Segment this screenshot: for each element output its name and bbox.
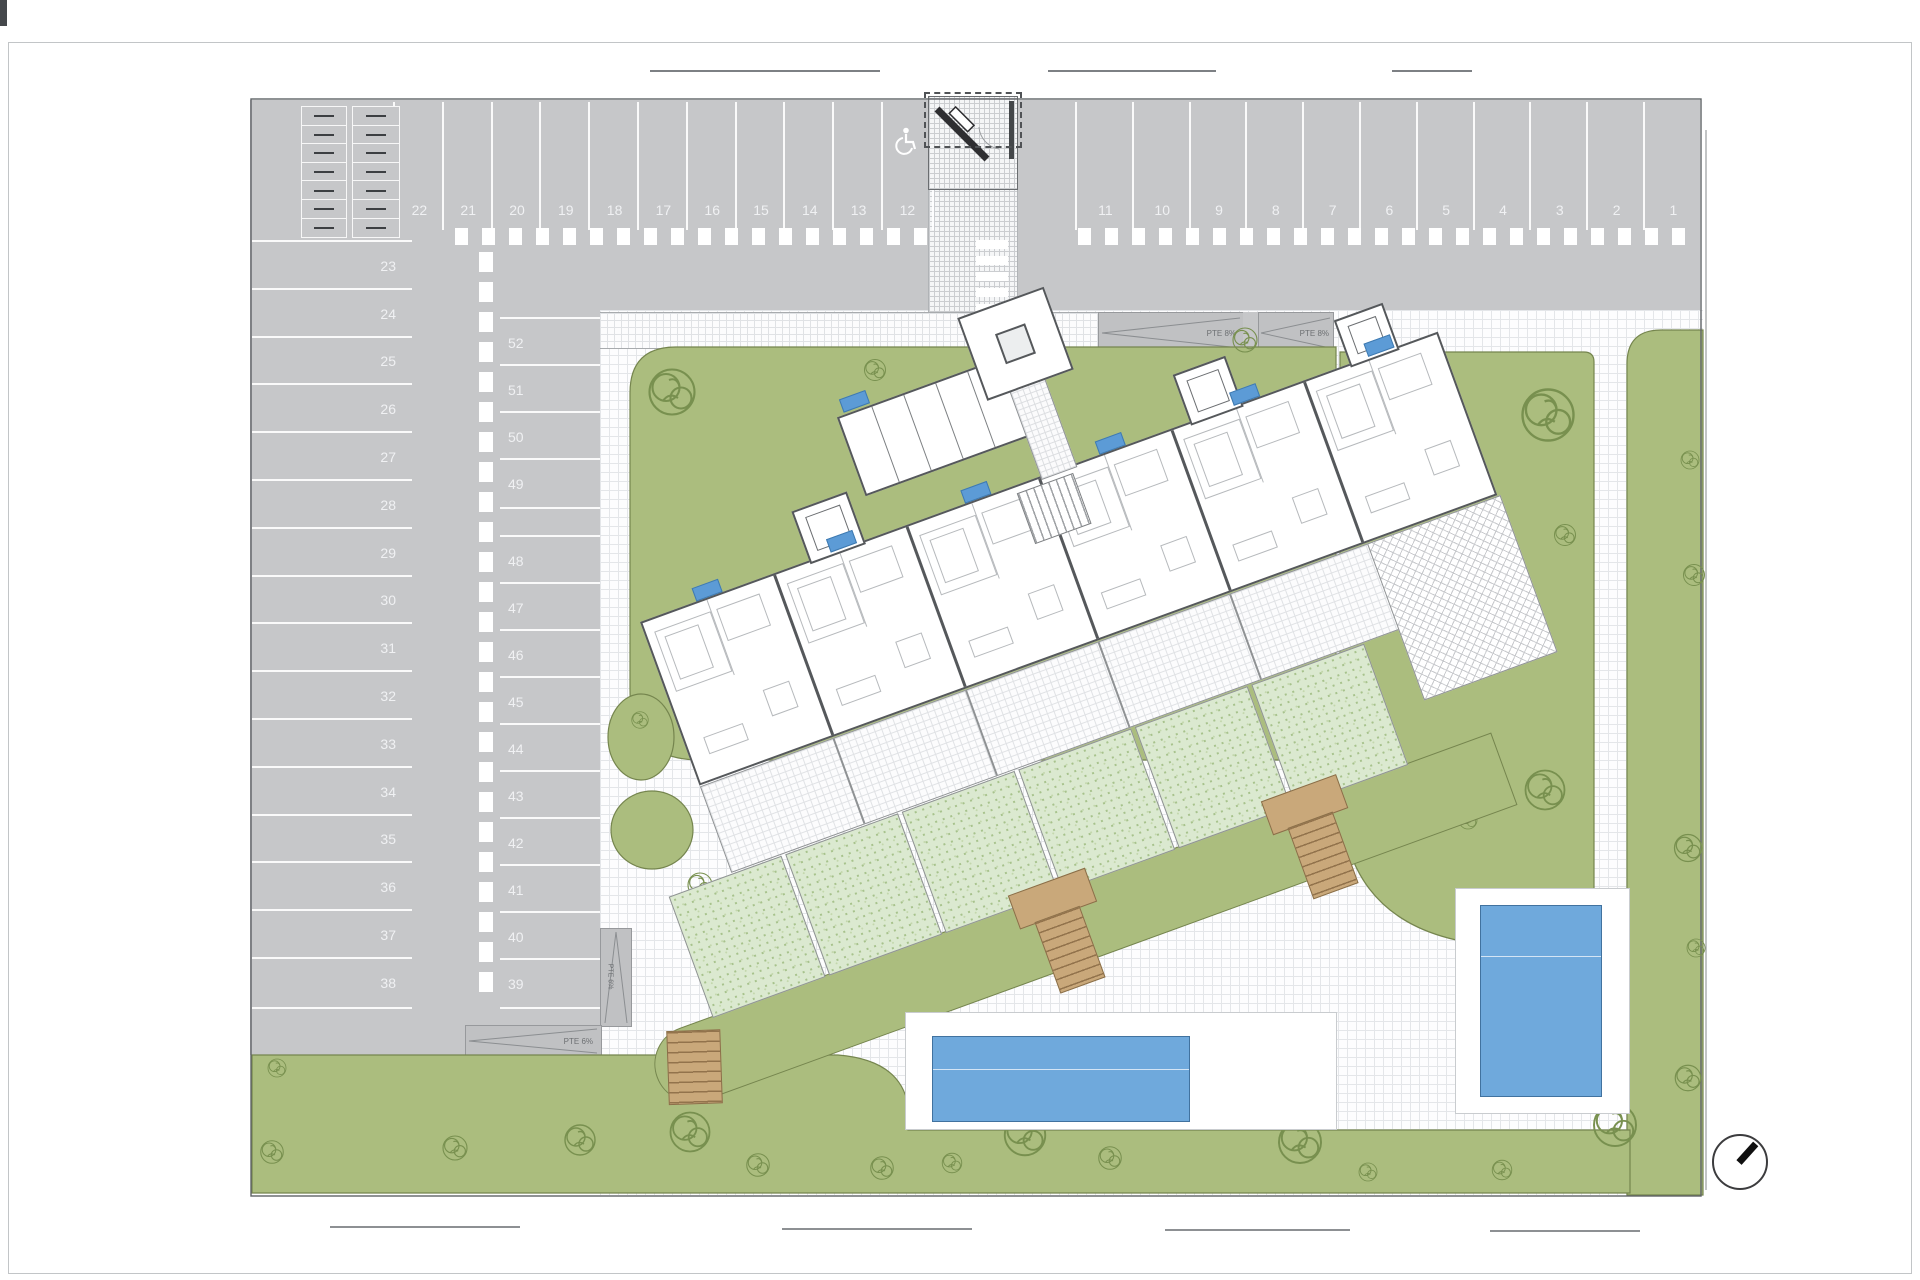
lane-dash — [698, 228, 711, 245]
bike-icon — [314, 134, 334, 136]
bike-icon — [314, 171, 334, 173]
parking-space-number: 12 — [883, 202, 932, 218]
parking-space-number: 39 — [508, 976, 524, 992]
bike-rack-east — [1628, 423, 1670, 444]
terrace-divider — [1230, 594, 1263, 679]
table-outline — [1160, 536, 1196, 572]
lane-dash — [1294, 228, 1307, 245]
parking-space: 3 — [1529, 102, 1588, 230]
boundary-segment — [650, 70, 880, 72]
bike-icon — [1639, 525, 1659, 527]
lane-dash — [479, 882, 493, 902]
north-arrow — [1712, 1134, 1768, 1190]
sofa-outline — [703, 723, 749, 754]
parking-space-number: 7 — [1304, 202, 1361, 218]
parking-space-number: 18 — [590, 202, 639, 218]
lane-dash — [833, 228, 846, 245]
bike-rack — [301, 180, 347, 201]
storage-cell-divider — [871, 407, 899, 483]
lane-dash — [1213, 228, 1226, 245]
bathroom-outline — [1246, 401, 1301, 449]
parking-space-number: 15 — [737, 202, 786, 218]
ramp-label: PTE 6% — [564, 1037, 593, 1046]
lane-dash — [914, 228, 927, 245]
bike-rack — [352, 162, 400, 183]
lane-dash — [455, 228, 468, 245]
lane-dash — [1186, 228, 1199, 245]
lane-dash — [479, 612, 493, 632]
bike-rack — [352, 218, 400, 239]
lane-dash — [1429, 228, 1442, 245]
table-outline — [1292, 488, 1328, 524]
boundary-segment — [330, 1226, 520, 1228]
bike-icon — [314, 190, 334, 192]
lane-dash — [479, 492, 493, 512]
parking-space-number: 19 — [541, 202, 590, 218]
lane-dash — [479, 732, 493, 752]
parking-space: 52 — [500, 317, 600, 366]
ramp-label: PTE 8% — [1300, 329, 1329, 338]
parking-space-number: 20 — [493, 202, 542, 218]
wheelchair-icon — [895, 126, 919, 156]
sofa-outline — [1365, 482, 1411, 513]
parking-space: 26 — [252, 383, 412, 433]
lane-dash — [1645, 228, 1658, 245]
crosswalk-stripe — [976, 240, 1008, 249]
parking-space-number: 29 — [380, 545, 396, 561]
parking-space: 10 — [1132, 102, 1191, 230]
lane-dash — [1483, 228, 1496, 245]
parking-space-number: 34 — [380, 784, 396, 800]
parking-space: 31 — [252, 622, 412, 672]
parking-space-number: 17 — [639, 202, 688, 218]
sofa-outline — [836, 675, 882, 706]
parking-space: 39 — [500, 958, 600, 1009]
boundary-segment — [1165, 1229, 1350, 1231]
parking-space: 44 — [500, 723, 600, 772]
lane-dash — [1321, 228, 1334, 245]
parking-space-number: 43 — [508, 788, 524, 804]
parking-space: 23 — [252, 240, 412, 290]
parking-space: 27 — [252, 431, 412, 481]
parking-space: 36 — [252, 861, 412, 911]
lane-dash — [479, 822, 493, 842]
parking-space: 19 — [539, 102, 590, 230]
bike-rack — [301, 218, 347, 239]
elevator-core — [995, 323, 1036, 364]
crosswalk-stripe — [976, 288, 1008, 297]
parking-space-number: 3 — [1531, 202, 1588, 218]
parking-space-number: 44 — [508, 741, 524, 757]
lane-dash — [779, 228, 792, 245]
parking-space: 7 — [1302, 102, 1361, 230]
parking-space: 24 — [252, 288, 412, 338]
boundary-segment — [1048, 70, 1216, 72]
lane-dash — [479, 762, 493, 782]
lane-dash — [806, 228, 819, 245]
waterline — [1481, 956, 1601, 957]
parking-space-number: 33 — [380, 736, 396, 752]
terrace-divider — [833, 739, 866, 824]
parking-space: 25 — [252, 336, 412, 386]
parking-space: 45 — [500, 676, 600, 725]
gate-kiosk-dashed-outline — [924, 92, 1022, 148]
parking-space-number: 31 — [380, 640, 396, 656]
lane-dash — [860, 228, 873, 245]
lane-dash — [1618, 228, 1631, 245]
parking-space-number: 48 — [508, 553, 524, 569]
parking-space: 1 — [1643, 102, 1704, 230]
parking-space-number: 1 — [1645, 202, 1702, 218]
site-plan-page: { "colors":{ "asphalt":"#c6c7c9","lawn":… — [0, 0, 1920, 1280]
parking-space: 41 — [500, 864, 600, 913]
parking-space-number: 36 — [380, 879, 396, 895]
parking-space-number: 35 — [380, 831, 396, 847]
lane-dash — [479, 402, 493, 422]
parking-space-number: 13 — [834, 202, 883, 218]
lane-dash — [479, 852, 493, 872]
parking-space: 28 — [252, 479, 412, 529]
ramp-label: PTE 6% — [606, 964, 613, 990]
parking-space-number: 16 — [688, 202, 737, 218]
parking-space: 21 — [442, 102, 493, 230]
bike-icon — [1639, 470, 1659, 472]
lane-dash — [1240, 228, 1253, 245]
boundary-segment — [1392, 70, 1472, 72]
lane-dash — [725, 228, 738, 245]
bike-rack-east — [1628, 516, 1670, 537]
lane-dash — [1402, 228, 1415, 245]
bike-rack-east — [1628, 498, 1670, 519]
lane-dash — [1267, 228, 1280, 245]
bike-rack-east — [1628, 535, 1670, 556]
bike-rack — [352, 199, 400, 220]
bathroom-outline — [716, 593, 771, 641]
bike-rack-east — [1628, 479, 1670, 500]
parking-space-number: 50 — [508, 429, 524, 445]
bike-icon — [1639, 544, 1659, 546]
parking-space: 51 — [500, 364, 600, 413]
parking-space: 5 — [1416, 102, 1475, 230]
parking-space-number: 2 — [1588, 202, 1645, 218]
parking-space-number: 40 — [508, 929, 524, 945]
bike-rack — [352, 125, 400, 146]
lane-dash — [644, 228, 657, 245]
lane-dash — [1510, 228, 1523, 245]
parking-space: 46 — [500, 629, 600, 678]
lane-dash — [482, 228, 495, 245]
lane-dash — [617, 228, 630, 245]
parking-space: 34 — [252, 766, 412, 816]
bathroom-outline — [1378, 353, 1433, 401]
parking-space: 16 — [686, 102, 737, 230]
parking-space-number: 42 — [508, 835, 524, 851]
lane-dash — [479, 552, 493, 572]
lane-dash — [479, 702, 493, 722]
lane-dash — [536, 228, 549, 245]
ramp-side: PTE 6% — [600, 928, 632, 1027]
sofa-outline — [1100, 578, 1146, 609]
parking-space-number: 4 — [1475, 202, 1532, 218]
bike-icon — [314, 115, 334, 117]
parking-space-number: 28 — [380, 497, 396, 513]
parking-space-number: 37 — [380, 927, 396, 943]
parking-space: 50 — [500, 411, 600, 460]
ramp-top-b: PTE 8% — [1258, 312, 1334, 354]
bike-rack — [301, 143, 347, 164]
parking-space-number: 8 — [1247, 202, 1304, 218]
lane-dash — [479, 672, 493, 692]
lane-dash — [479, 582, 493, 602]
parking-space: 29 — [252, 527, 412, 577]
lane-dash — [1159, 228, 1172, 245]
bike-rack — [301, 199, 347, 220]
lane-dash — [590, 228, 603, 245]
lane-dash — [479, 462, 493, 482]
parking-space-number: 14 — [785, 202, 834, 218]
lane-dash — [1591, 228, 1604, 245]
table-outline — [895, 632, 931, 668]
lane-dash — [479, 252, 493, 272]
parking-space-number: 23 — [380, 258, 396, 274]
bike-rack-east — [1628, 460, 1670, 481]
crosswalk-stripe — [976, 256, 1008, 265]
bike-icon — [314, 227, 334, 229]
bike-icon — [366, 190, 386, 192]
table-outline — [1027, 584, 1063, 620]
bike-rack — [301, 106, 347, 127]
bike-icon — [1639, 488, 1659, 490]
bike-rack-east — [1628, 442, 1670, 463]
lane-dash — [479, 912, 493, 932]
ramp-label: PTE 8% — [1207, 329, 1236, 338]
bike-icon — [1639, 581, 1659, 583]
storage-cell-divider — [935, 383, 963, 459]
parking-space-number: 41 — [508, 882, 524, 898]
lane-dash — [671, 228, 684, 245]
tower-inner — [1186, 369, 1230, 413]
lane-dash — [479, 792, 493, 812]
lane-dash — [563, 228, 576, 245]
lane-dash — [1078, 228, 1091, 245]
bike-rack-east — [1628, 405, 1670, 426]
parking-space: 38 — [252, 957, 412, 1009]
bike-rack-east — [1628, 386, 1670, 407]
lane-dash — [1564, 228, 1577, 245]
parking-space-number: 5 — [1418, 202, 1475, 218]
parking-space: 40 — [500, 911, 600, 960]
lane-dash — [1672, 228, 1685, 245]
parking-space: 20 — [491, 102, 542, 230]
lane-dash — [1348, 228, 1361, 245]
lane-dash — [1105, 228, 1118, 245]
parking-space-number: 32 — [380, 688, 396, 704]
parking-space-number: 38 — [380, 975, 396, 991]
ramp-gap — [1243, 312, 1258, 352]
bike-icon — [314, 152, 334, 154]
lane-dash — [1132, 228, 1145, 245]
parking-space-number: 51 — [508, 382, 524, 398]
parking-space-number: 45 — [508, 694, 524, 710]
parking-space: 11 — [1075, 102, 1134, 230]
boundary-segment — [1490, 1230, 1640, 1232]
parking-space: 37 — [252, 909, 412, 959]
bike-icon — [366, 152, 386, 154]
bike-icon — [366, 171, 386, 173]
parking-space: 13 — [832, 102, 883, 230]
parking-space: 49 — [500, 458, 600, 509]
parking-space-number: 46 — [508, 647, 524, 663]
bike-icon — [366, 208, 386, 210]
bike-rack-east — [1628, 553, 1670, 574]
bike-icon — [314, 208, 334, 210]
bike-rack — [301, 162, 347, 183]
parking-space: 30 — [252, 575, 412, 625]
swimming-pool-main — [932, 1036, 1190, 1122]
bike-icon — [1639, 395, 1659, 397]
lane-dash — [1537, 228, 1550, 245]
ramp-top-a: PTE 8% — [1098, 312, 1245, 354]
walkway-gate — [0, 0, 7, 26]
parking-space-number: 6 — [1361, 202, 1418, 218]
parking-space-number: 21 — [444, 202, 493, 218]
table-outline — [763, 681, 799, 717]
waterline — [933, 1069, 1189, 1070]
lane-dash — [479, 342, 493, 362]
parking-space: 48 — [500, 535, 600, 584]
sofa-outline — [968, 627, 1014, 658]
parking-space-number: 25 — [380, 353, 396, 369]
parking-space: 47 — [500, 582, 600, 631]
lane-dash — [752, 228, 765, 245]
lane-dash — [479, 372, 493, 392]
parking-space-number: 47 — [508, 600, 524, 616]
bike-rack — [352, 106, 400, 127]
parking-space: 22 — [393, 102, 444, 230]
garden-stairs — [666, 1029, 723, 1105]
swimming-pool-second — [1480, 905, 1602, 1097]
parking-space: 4 — [1473, 102, 1532, 230]
parking-space-number: 26 — [380, 401, 396, 417]
lane-dash — [479, 942, 493, 962]
lane-dash — [1375, 228, 1388, 245]
sofa-outline — [1233, 530, 1279, 561]
lane-dash — [1456, 228, 1469, 245]
parking-space: 18 — [588, 102, 639, 230]
bathroom-outline — [1113, 449, 1168, 497]
parking-space: 2 — [1586, 102, 1645, 230]
bike-icon — [366, 134, 386, 136]
lane-dash — [479, 522, 493, 542]
ramp-bottom: PTE 6% — [465, 1025, 602, 1057]
parking-space: 32 — [252, 670, 412, 720]
parking-space: 35 — [252, 814, 412, 864]
parking-space: 17 — [637, 102, 688, 230]
parking-space: 43 — [500, 770, 600, 819]
parking-space-number: 9 — [1191, 202, 1248, 218]
lane-dash — [887, 228, 900, 245]
bike-icon — [1639, 507, 1659, 509]
parking-space: 14 — [783, 102, 834, 230]
parking-space-number: 49 — [508, 476, 524, 492]
bike-icon — [1639, 563, 1659, 565]
parking-space: 8 — [1245, 102, 1304, 230]
bike-rack-east — [1628, 572, 1670, 593]
bathroom-outline — [849, 545, 904, 593]
terrace-divider — [965, 690, 998, 775]
parking-space: 9 — [1189, 102, 1248, 230]
bike-rack — [352, 143, 400, 164]
parking-space: 33 — [252, 718, 412, 768]
terrace-divider — [1097, 642, 1130, 727]
lane-dash — [479, 642, 493, 662]
parking-space-number: 30 — [380, 592, 396, 608]
parking-space: 42 — [500, 817, 600, 866]
boundary-segment — [782, 1228, 972, 1230]
parking-space: 15 — [735, 102, 786, 230]
parking-space-number: 27 — [380, 449, 396, 465]
table-outline — [1424, 440, 1460, 476]
lane-dash — [479, 432, 493, 452]
lane-dash — [479, 972, 493, 992]
crosswalk-stripe — [976, 272, 1008, 281]
bike-icon — [1639, 414, 1659, 416]
bike-icon — [1639, 451, 1659, 453]
lane-dash — [479, 312, 493, 332]
bike-icon — [366, 115, 386, 117]
storage-cell-divider — [903, 395, 931, 471]
lane-dash — [509, 228, 522, 245]
parking-space-number: 10 — [1134, 202, 1191, 218]
parking-space-number: 24 — [380, 306, 396, 322]
north-arrow-needle — [1736, 1142, 1758, 1165]
bike-icon — [1639, 432, 1659, 434]
parking-space-number: 52 — [508, 335, 524, 351]
bike-icon — [366, 227, 386, 229]
lane-dash — [479, 282, 493, 302]
parking-space: 6 — [1359, 102, 1418, 230]
bike-rack — [352, 180, 400, 201]
bike-rack — [301, 125, 347, 146]
parking-space-number: 22 — [395, 202, 444, 218]
parking-space-number: 11 — [1077, 202, 1134, 218]
